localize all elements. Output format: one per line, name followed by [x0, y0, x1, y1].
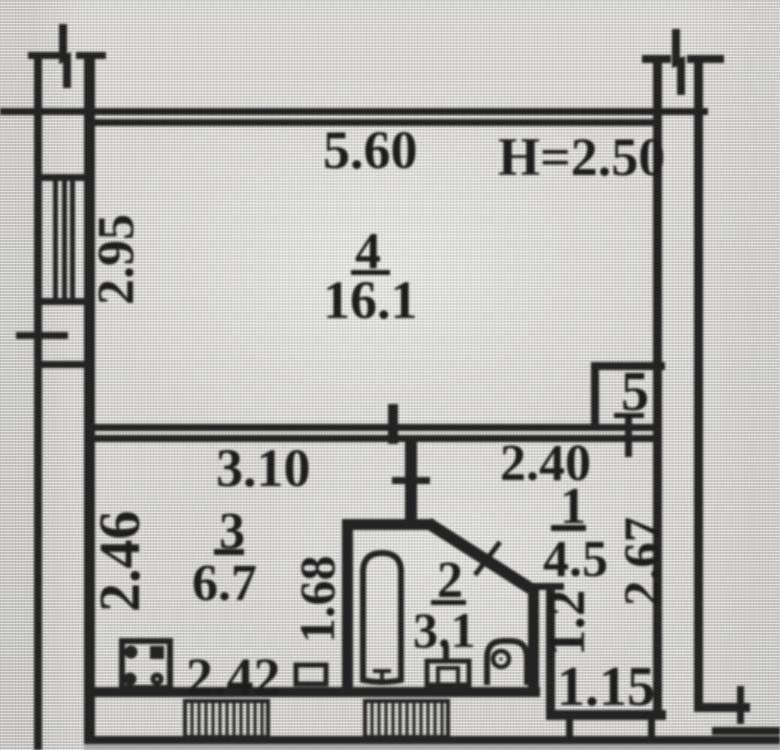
svg-text:5.60: 5.60 [323, 120, 418, 180]
svg-text:1.2: 1.2 [538, 590, 596, 656]
svg-text:2.46: 2.46 [87, 511, 152, 613]
svg-text:4.5: 4.5 [543, 531, 608, 588]
svg-text:2.67: 2.67 [615, 517, 671, 606]
svg-text:6.7: 6.7 [192, 555, 257, 612]
svg-text:3.10: 3.10 [216, 438, 311, 498]
svg-text:16.1: 16.1 [323, 270, 418, 330]
svg-text:1.68: 1.68 [289, 556, 345, 644]
svg-text:2.95: 2.95 [88, 214, 145, 305]
svg-text:2.42: 2.42 [186, 647, 281, 707]
svg-text:3.1: 3.1 [413, 602, 476, 658]
svg-text:H=2.50: H=2.50 [498, 127, 665, 187]
svg-text:1.15: 1.15 [557, 656, 655, 718]
